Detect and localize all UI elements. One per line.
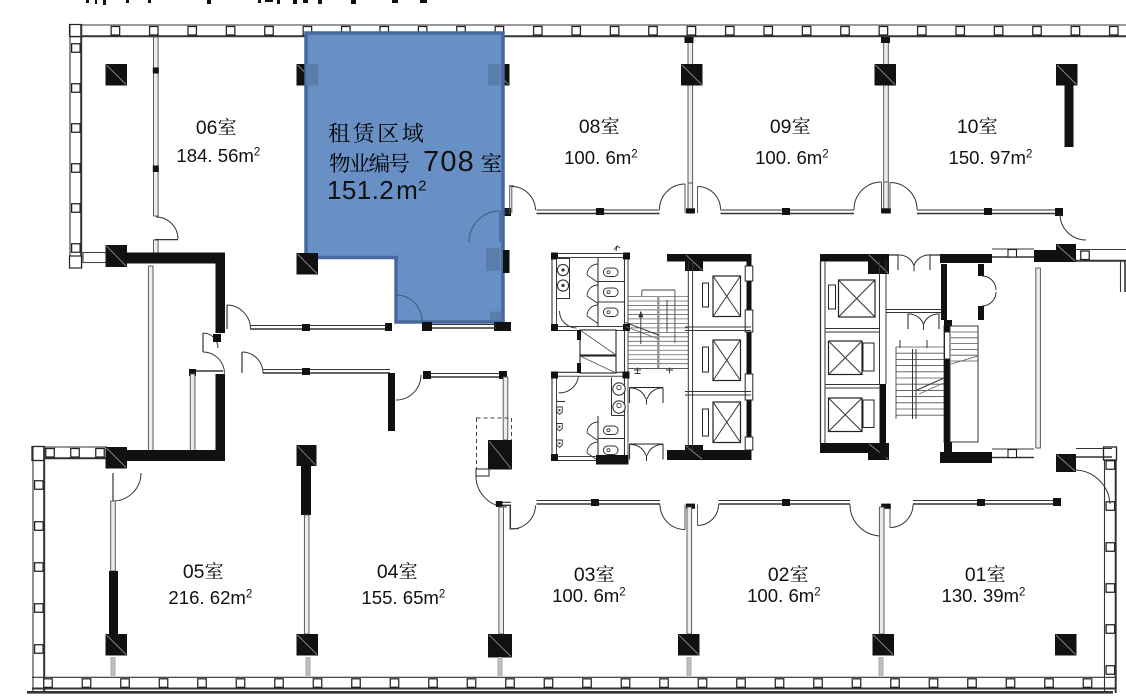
svg-text:06: 06 bbox=[196, 117, 218, 139]
svg-text:08: 08 bbox=[579, 116, 601, 138]
svg-text:100. 6m2: 100. 6m2 bbox=[564, 147, 638, 168]
svg-text:02: 02 bbox=[768, 564, 790, 586]
svg-text:100. 6m2: 100. 6m2 bbox=[552, 585, 626, 606]
svg-text:01: 01 bbox=[965, 564, 987, 586]
svg-text:100. 6m2: 100. 6m2 bbox=[747, 585, 821, 606]
svg-text:09: 09 bbox=[770, 116, 792, 138]
svg-text:216. 62m2: 216. 62m2 bbox=[168, 587, 252, 608]
svg-text:100. 6m2: 100. 6m2 bbox=[755, 147, 829, 168]
svg-text:150. 97m2: 150. 97m2 bbox=[949, 147, 1033, 168]
svg-text:130. 39m2: 130. 39m2 bbox=[942, 585, 1026, 606]
svg-text:151.2m2: 151.2m2 bbox=[327, 175, 427, 205]
svg-text:155. 65m2: 155. 65m2 bbox=[361, 587, 445, 608]
svg-text:10: 10 bbox=[957, 116, 979, 138]
svg-text:708: 708 bbox=[423, 146, 475, 178]
svg-text:184. 56m2: 184. 56m2 bbox=[176, 145, 260, 166]
svg-text:05: 05 bbox=[183, 561, 205, 583]
svg-text:03: 03 bbox=[574, 564, 596, 586]
svg-text:04: 04 bbox=[377, 561, 399, 583]
